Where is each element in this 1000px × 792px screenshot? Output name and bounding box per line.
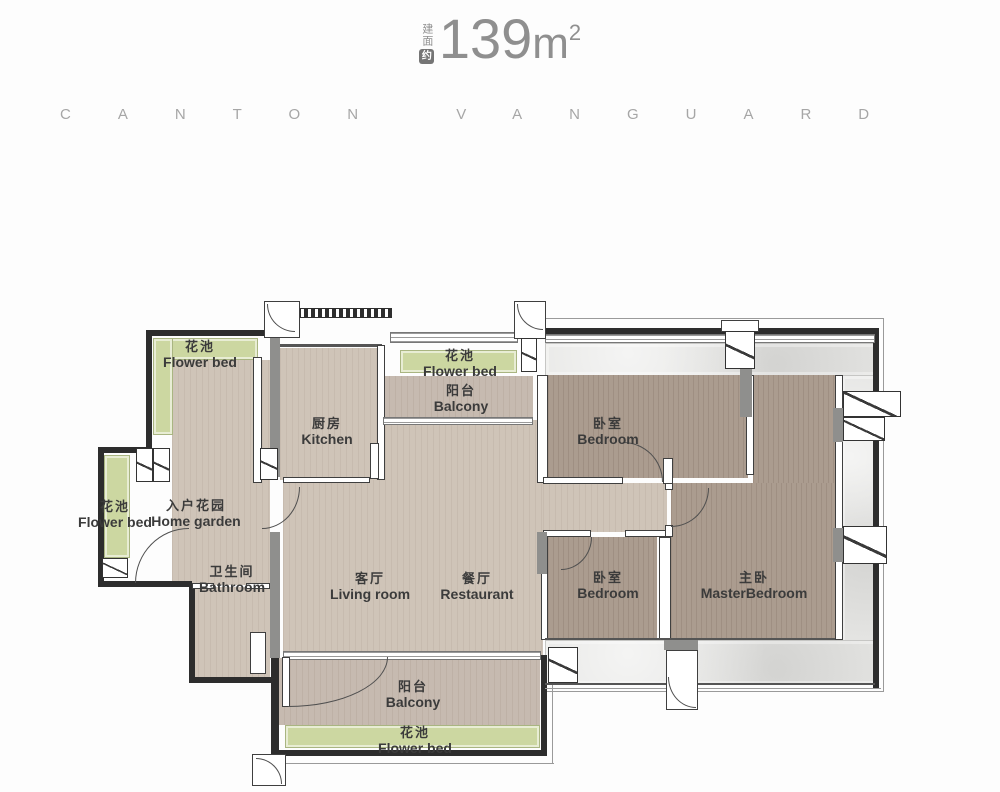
label-en: Flower bed — [423, 363, 497, 380]
eave-line-top — [545, 318, 884, 319]
window-icon-flowerbed-left — [102, 558, 128, 578]
outer-wall-balcony-left — [271, 655, 279, 756]
label-zh: 阳台 — [386, 679, 440, 694]
slider-track-balcony-top — [383, 417, 533, 425]
kitchen-door-leaf — [370, 443, 379, 479]
terrace-bottom-floor — [545, 640, 877, 685]
wall-kitchen-bottom — [283, 477, 370, 483]
window-icon-garden — [260, 448, 278, 480]
window-track-top-center — [390, 332, 518, 343]
boundary-line-bottom-right — [545, 683, 875, 685]
kitchen-floor — [280, 348, 377, 480]
window-icon-right-lower — [843, 526, 887, 564]
pier-living-bedroom — [537, 532, 547, 574]
kitchen-top-wall — [280, 344, 382, 347]
eave-line-bottom-right — [545, 691, 884, 692]
label-master-bedroom: 主卧 MasterBedroom — [701, 570, 808, 602]
floor-plan: 花池 Flower bed 花池 Flower bed 阳台 Balcony 厨… — [0, 0, 1000, 792]
label-home-garden: 入户花园 Home garden — [151, 498, 240, 530]
label-flower-bed-left: 花池 Flower bed — [78, 499, 152, 531]
label-zh: 卫生间 — [199, 564, 265, 579]
mullion-bedroom-top — [740, 367, 752, 417]
label-flower-bed-bottom: 花池 Flower bed — [378, 725, 452, 757]
eave-line-right — [883, 318, 884, 692]
label-zh: 厨房 — [301, 416, 352, 431]
label-bathroom: 卫生间 Bathroom — [199, 564, 265, 596]
terrace-door-pier — [664, 640, 698, 650]
flue-hatch-band — [296, 308, 392, 318]
label-kitchen: 厨房 Kitchen — [301, 416, 352, 448]
window-icon-right-upper-a — [843, 391, 901, 417]
outer-wall-top-left — [146, 330, 268, 336]
label-bedroom-bottom: 卧室 Bedroom — [577, 570, 638, 602]
label-en: Bedroom — [577, 431, 638, 448]
label-balcony-top: 阳台 Balcony — [434, 383, 488, 415]
label-flower-bed-top-center: 花池 Flower bed — [423, 348, 497, 380]
label-en: Balcony — [434, 398, 488, 415]
home-garden-door-arc — [135, 528, 189, 583]
label-zh: 客厅 — [330, 571, 410, 586]
corridor-floor — [543, 483, 667, 532]
outer-wall-balcony-right — [541, 655, 547, 756]
label-zh: 卧室 — [577, 416, 638, 431]
floor-plan-page: 建面 约 139m2 CANTON VANGUARD — [0, 0, 1000, 792]
wall-corridor-south-a — [543, 530, 591, 537]
label-zh: 入户花园 — [151, 498, 240, 513]
label-en: Kitchen — [301, 431, 352, 448]
label-restaurant: 餐厅 Restaurant — [440, 571, 513, 603]
wall-bedroom-top-bottom — [543, 477, 623, 484]
outer-wall-right — [873, 328, 879, 688]
label-living-room: 客厅 Living room — [330, 571, 410, 603]
label-en: Flower bed — [163, 354, 237, 371]
label-en: Living room — [330, 586, 410, 603]
label-zh: 阳台 — [434, 383, 488, 398]
eave-line-balcony — [278, 763, 554, 764]
wall-living-bedroom-top — [537, 375, 548, 483]
label-en: Home garden — [151, 513, 240, 530]
terrace-top-floor — [545, 343, 877, 376]
label-zh: 餐厅 — [440, 571, 513, 586]
label-bedroom-top: 卧室 Bedroom — [577, 416, 638, 448]
wall-garden-living — [270, 532, 280, 658]
window-track-top-right — [545, 334, 875, 343]
label-en: Bedroom — [577, 585, 638, 602]
label-en: MasterBedroom — [701, 585, 808, 602]
window-icon-top-center — [521, 338, 537, 372]
window-icon-left-a — [136, 448, 153, 482]
outer-wall-left-upper — [146, 330, 152, 452]
window-icon-right-upper-b — [843, 417, 885, 441]
pier-master-east-upper — [833, 408, 843, 442]
label-en: Flower bed — [378, 740, 452, 757]
outer-wall-bathroom-left — [189, 585, 195, 683]
label-en: Balcony — [386, 694, 440, 711]
window-icon-left-b — [153, 448, 170, 482]
label-en: Restaurant — [440, 586, 513, 603]
label-zh: 主卧 — [701, 570, 808, 585]
wall-bedroom-master — [659, 537, 671, 640]
label-zh: 花池 — [163, 339, 237, 354]
bathroom-fixture — [250, 632, 266, 674]
label-flower-bed-top-left: 花池 Flower bed — [163, 339, 237, 371]
wall-bedroom-top-corner — [663, 458, 673, 484]
outer-wall-bathroom-bottom — [189, 677, 275, 683]
label-en: Bathroom — [199, 579, 265, 596]
boundary-line-bottom-right-2 — [545, 688, 881, 689]
window-icon-terrace-bottom — [548, 647, 578, 683]
label-zh: 花池 — [78, 499, 152, 514]
wall-corridor-south-b — [625, 530, 667, 537]
label-en: Flower bed — [78, 514, 152, 531]
label-balcony-bottom: 阳台 Balcony — [386, 679, 440, 711]
window-icon-top-column — [725, 331, 755, 369]
label-zh: 花池 — [423, 348, 497, 363]
label-zh: 卧室 — [577, 570, 638, 585]
pier-master-east-lower — [833, 528, 843, 562]
label-zh: 花池 — [378, 725, 452, 740]
